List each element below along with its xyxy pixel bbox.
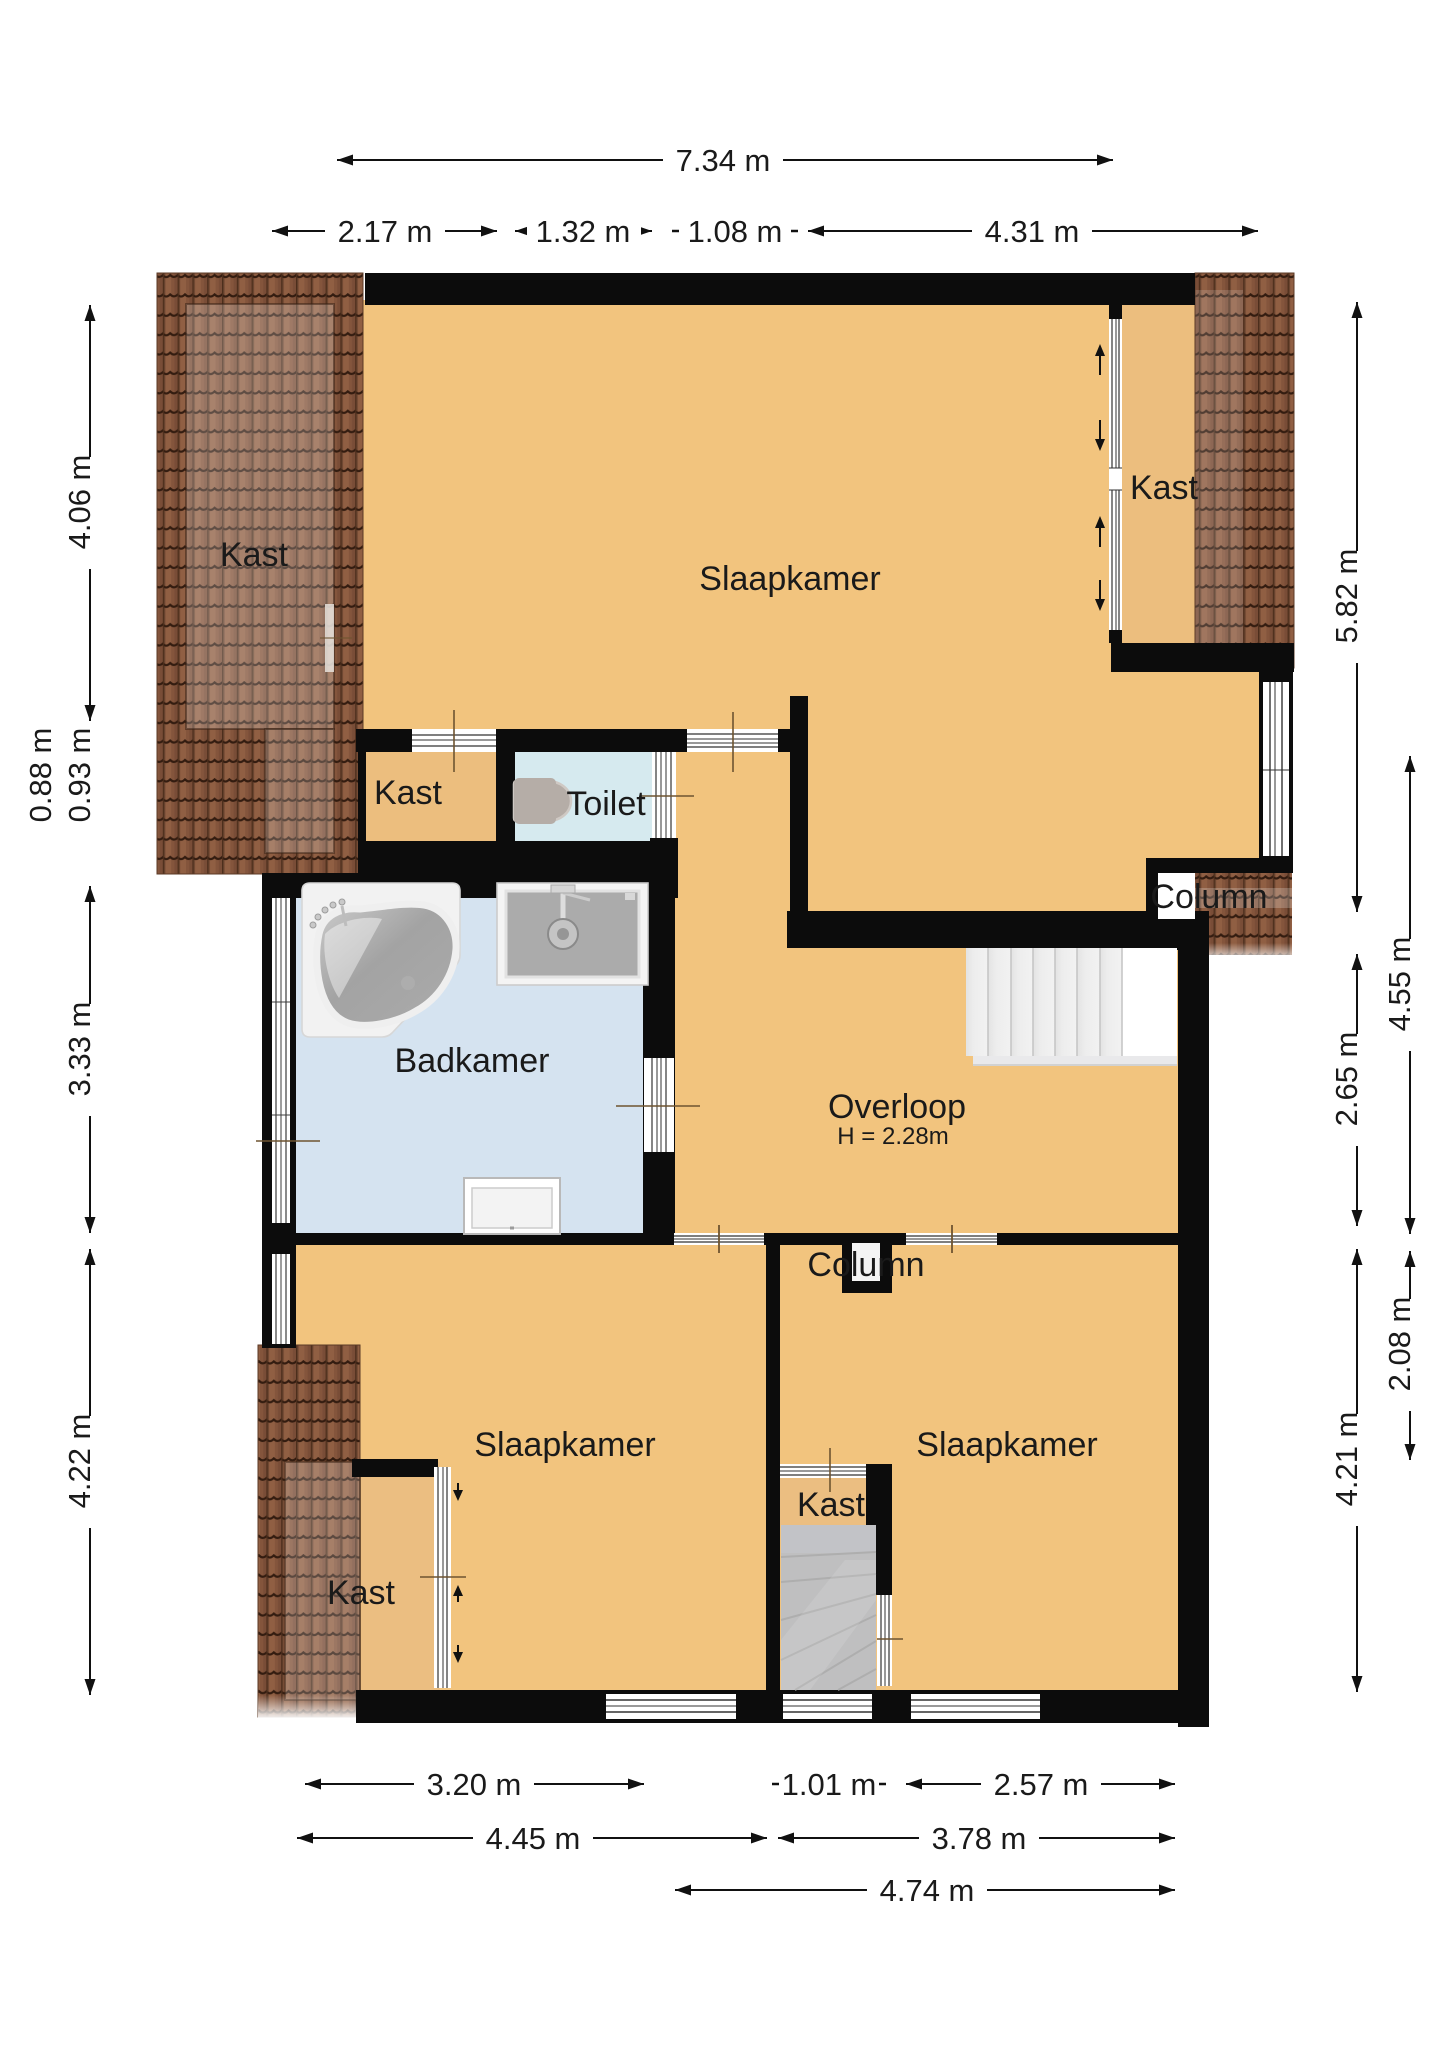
svg-text:2.08 m: 2.08 m [1382, 1297, 1417, 1392]
svg-text:2.65 m: 2.65 m [1329, 1032, 1364, 1127]
svg-text:Badkamer: Badkamer [395, 1042, 550, 1080]
svg-text:Kast: Kast [1130, 469, 1199, 507]
svg-text:3.78 m: 3.78 m [932, 1821, 1027, 1856]
svg-text:Kast: Kast [327, 1574, 396, 1612]
svg-text:Slaapkamer: Slaapkamer [916, 1426, 1097, 1464]
svg-text:4.06 m: 4.06 m [62, 455, 97, 550]
svg-text:5.82 m: 5.82 m [1329, 549, 1364, 644]
svg-text:4.74 m: 4.74 m [880, 1873, 975, 1908]
svg-text:0.93 m: 0.93 m [62, 728, 97, 823]
svg-text:3.33 m: 3.33 m [62, 1002, 97, 1097]
svg-text:4.22 m: 4.22 m [62, 1414, 97, 1509]
svg-text:4.55 m: 4.55 m [1382, 937, 1417, 1032]
svg-text:3.20 m: 3.20 m [427, 1767, 522, 1802]
svg-text:Kast: Kast [797, 1486, 866, 1524]
svg-text:1.01 m: 1.01 m [782, 1767, 877, 1802]
svg-text:Slaapkamer: Slaapkamer [474, 1426, 655, 1464]
svg-text:Overloop: Overloop [828, 1088, 966, 1126]
svg-text:Kast: Kast [220, 536, 289, 574]
svg-text:4.31 m: 4.31 m [985, 214, 1080, 249]
svg-text:Column: Column [1150, 878, 1267, 916]
svg-text:1.08 m: 1.08 m [688, 214, 783, 249]
svg-text:2.57 m: 2.57 m [994, 1767, 1089, 1802]
svg-text:2.17 m: 2.17 m [338, 214, 433, 249]
svg-text:4.21 m: 4.21 m [1329, 1412, 1364, 1507]
svg-text:1.32 m: 1.32 m [536, 214, 631, 249]
svg-text:4.45 m: 4.45 m [486, 1821, 581, 1856]
svg-text:Toilet: Toilet [566, 785, 646, 823]
svg-text:H = 2.28m: H = 2.28m [837, 1123, 948, 1150]
svg-text:7.34 m: 7.34 m [676, 143, 771, 178]
svg-text:0.88 m: 0.88 m [23, 728, 58, 823]
svg-text:Column: Column [807, 1246, 924, 1284]
svg-text:Slaapkamer: Slaapkamer [699, 560, 880, 598]
svg-text:Kast: Kast [374, 774, 443, 812]
